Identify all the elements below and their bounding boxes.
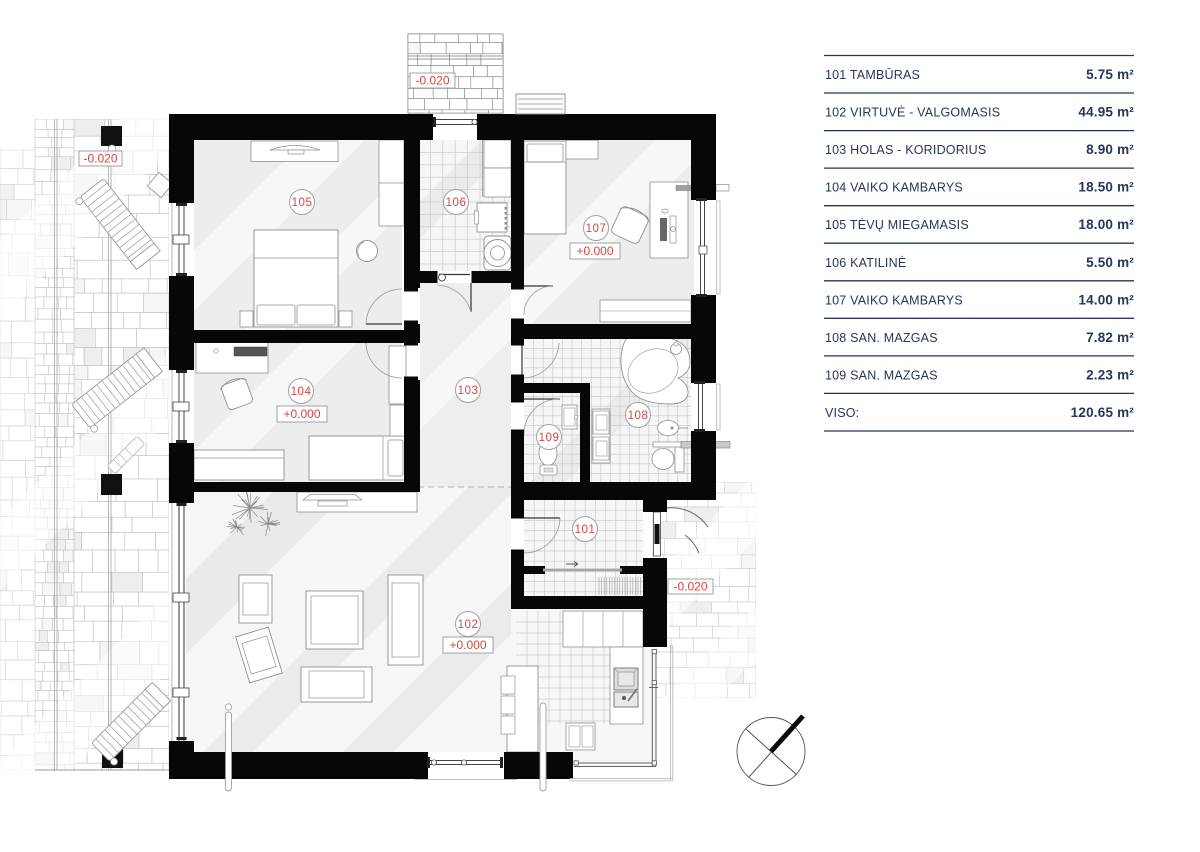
svg-text:101 TAMBŪRAS: 101 TAMBŪRAS bbox=[825, 68, 920, 82]
svg-text:109: 109 bbox=[539, 432, 560, 444]
svg-text:14.00 m²: 14.00 m² bbox=[1078, 292, 1134, 307]
svg-text:109 SAN. MAZGAS: 109 SAN. MAZGAS bbox=[825, 368, 938, 382]
svg-text:101: 101 bbox=[575, 524, 596, 536]
svg-text:+0.000: +0.000 bbox=[576, 244, 613, 258]
svg-text:108: 108 bbox=[628, 410, 649, 422]
svg-text:2.23 m²: 2.23 m² bbox=[1086, 367, 1134, 382]
svg-text:106 KATILINĖ: 106 KATILINĖ bbox=[825, 256, 906, 270]
svg-text:102 VIRTUVĖ - VALGOMASIS: 102 VIRTUVĖ - VALGOMASIS bbox=[825, 106, 1000, 120]
svg-text:120.65 m²: 120.65 m² bbox=[1071, 405, 1135, 420]
svg-text:104: 104 bbox=[291, 386, 312, 398]
svg-text:103: 103 bbox=[458, 385, 479, 397]
svg-text:105 TĖVŲ MIEGAMASIS: 105 TĖVŲ MIEGAMASIS bbox=[825, 218, 969, 232]
svg-text:102: 102 bbox=[458, 619, 479, 631]
svg-text:-0.020: -0.020 bbox=[673, 580, 707, 594]
svg-text:107: 107 bbox=[586, 223, 607, 235]
svg-text:5.50 m²: 5.50 m² bbox=[1086, 255, 1134, 270]
svg-text:107 VAIKO KAMBARYS: 107 VAIKO KAMBARYS bbox=[825, 293, 963, 307]
svg-text:+0.000: +0.000 bbox=[283, 407, 320, 421]
svg-text:108 SAN. MAZGAS: 108 SAN. MAZGAS bbox=[825, 331, 938, 345]
svg-text:-0.020: -0.020 bbox=[83, 152, 117, 166]
svg-text:103 HOLAS - KORIDORIUS: 103 HOLAS - KORIDORIUS bbox=[825, 143, 986, 157]
svg-text:+0.000: +0.000 bbox=[449, 638, 486, 652]
svg-text:-0.020: -0.020 bbox=[415, 74, 449, 88]
svg-text:104 VAIKO KAMBARYS: 104 VAIKO KAMBARYS bbox=[825, 181, 963, 195]
svg-text:105: 105 bbox=[292, 197, 313, 209]
svg-text:8.90 m²: 8.90 m² bbox=[1086, 142, 1134, 157]
svg-text:18.50 m²: 18.50 m² bbox=[1078, 180, 1134, 195]
svg-text:VISO:: VISO: bbox=[825, 406, 859, 420]
svg-text:106: 106 bbox=[446, 197, 467, 209]
svg-text:44.95 m²: 44.95 m² bbox=[1078, 105, 1134, 120]
svg-text:5.75 m²: 5.75 m² bbox=[1086, 67, 1134, 82]
svg-text:7.82 m²: 7.82 m² bbox=[1086, 330, 1134, 345]
svg-text:18.00 m²: 18.00 m² bbox=[1078, 217, 1134, 232]
